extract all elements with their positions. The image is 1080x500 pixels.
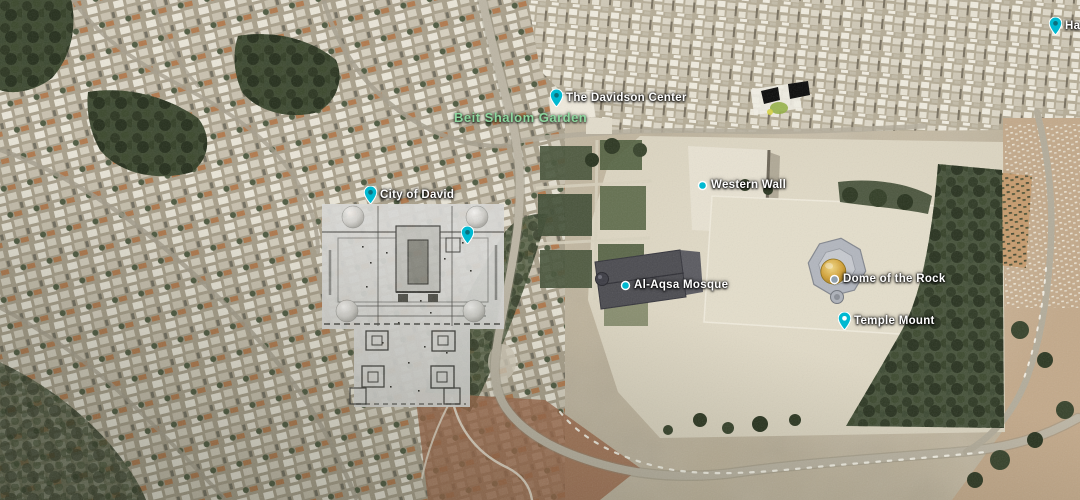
map-label-city-of-david[interactable]: City of David	[364, 186, 454, 204]
place-label: Temple Mount	[854, 315, 935, 327]
satellite-map[interactable]: The Davidson Center Beit Shalom Garden C…	[0, 0, 1080, 500]
map-label-edge-clipped[interactable]: Ha	[1049, 17, 1080, 35]
teardrop-pin-icon[interactable]	[461, 226, 474, 244]
map-label-al-aqsa-mosque[interactable]: Al-Aqsa Mosque	[620, 279, 728, 291]
map-label-temple-mount[interactable]: Temple Mount	[838, 312, 935, 330]
place-label: City of David	[380, 189, 454, 201]
teardrop-pin-icon[interactable]	[1049, 17, 1062, 35]
dot-pin-icon[interactable]	[697, 180, 708, 191]
dot-pin-icon[interactable]	[620, 280, 631, 291]
place-label: The Davidson Center	[566, 92, 687, 104]
map-label-dome-of-the-rock[interactable]: Dome of the Rock	[829, 273, 946, 285]
dot-pin-icon[interactable]	[829, 274, 840, 285]
map-label-western-wall[interactable]: Western Wall	[697, 179, 786, 191]
place-label: Al-Aqsa Mosque	[634, 279, 728, 291]
place-label: Ha	[1065, 20, 1080, 32]
teardrop-pin-icon[interactable]	[364, 186, 377, 204]
teardrop-pin-icon[interactable]	[550, 89, 563, 107]
park-label: Beit Shalom Garden	[454, 110, 587, 125]
map-label-beit-shalom-garden[interactable]: Beit Shalom Garden	[454, 110, 587, 125]
map-pin-unlabeled[interactable]	[461, 226, 474, 244]
teardrop-pin-icon[interactable]	[838, 312, 851, 330]
place-label: Western Wall	[711, 179, 786, 191]
satellite-imagery	[0, 0, 1080, 500]
map-label-davidson-center[interactable]: The Davidson Center	[550, 89, 687, 107]
place-label: Dome of the Rock	[843, 273, 946, 285]
